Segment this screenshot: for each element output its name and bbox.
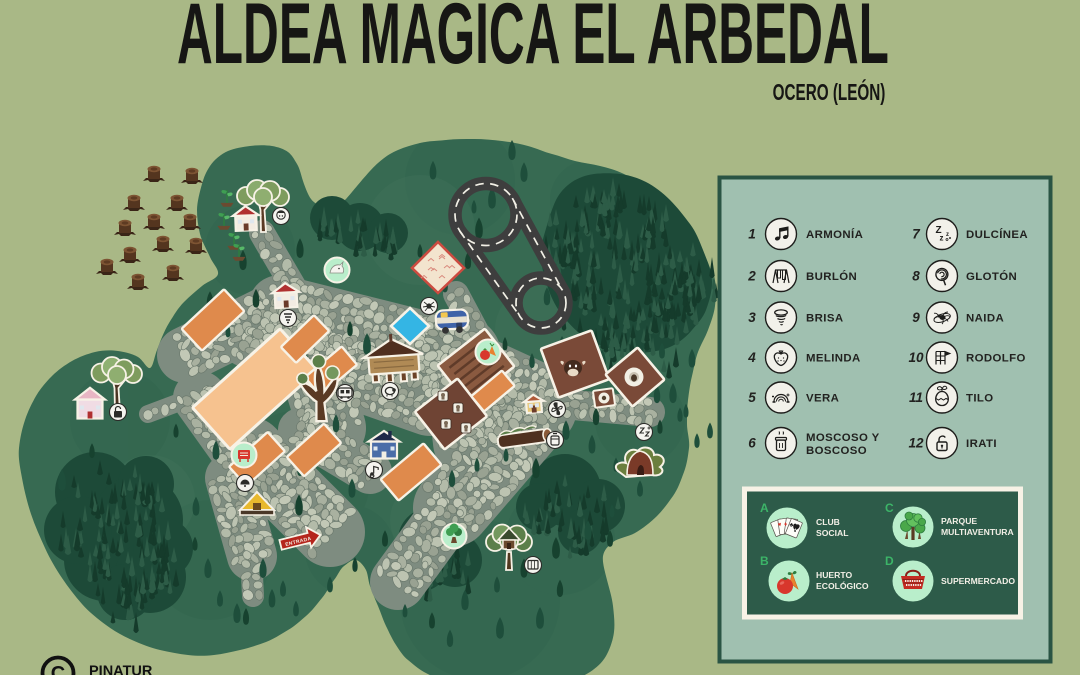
svg-text:6: 6 — [748, 436, 756, 451]
svg-text:MELINDA: MELINDA — [806, 353, 861, 365]
svg-text:DULCÍNEA: DULCÍNEA — [966, 228, 1028, 241]
svg-text:MOSCOSO Y: MOSCOSO Y — [806, 432, 880, 444]
svg-text:BRISA: BRISA — [806, 313, 843, 325]
svg-text:10: 10 — [908, 350, 924, 365]
svg-text:SUPERMERCADO: SUPERMERCADO — [941, 576, 1015, 586]
svg-text:3: 3 — [748, 310, 756, 325]
svg-text:PARQUE: PARQUE — [941, 516, 977, 526]
svg-text:IRATI: IRATI — [966, 438, 997, 450]
svg-text:5: 5 — [748, 390, 756, 405]
svg-text:GLOTÓN: GLOTÓN — [966, 270, 1017, 283]
svg-text:CLUB: CLUB — [816, 517, 840, 527]
svg-text:TILO: TILO — [966, 393, 994, 405]
svg-text:BURLÓN: BURLÓN — [806, 270, 857, 283]
svg-text:OCERO (LEÓN): OCERO (LEÓN) — [773, 77, 886, 106]
svg-text:ARMONÍA: ARMONÍA — [806, 228, 863, 241]
svg-text:BOSCOSO: BOSCOSO — [806, 445, 867, 457]
svg-text:z: z — [940, 234, 944, 243]
svg-text:4: 4 — [747, 350, 756, 365]
svg-text:NAIDA: NAIDA — [966, 313, 1004, 325]
svg-text:MULTIAVENTURA: MULTIAVENTURA — [941, 527, 1014, 537]
svg-text:C: C — [51, 663, 65, 675]
svg-text:z: z — [946, 232, 949, 238]
svg-text:A: A — [760, 501, 769, 515]
svg-text:♦: ♦ — [784, 522, 788, 528]
svg-text:B: B — [760, 554, 769, 568]
svg-text:SOCIAL: SOCIAL — [816, 528, 848, 538]
svg-text:D: D — [885, 554, 894, 568]
svg-text:11: 11 — [909, 390, 923, 405]
svg-text:ECOLÓGICO: ECOLÓGICO — [816, 580, 869, 591]
svg-text:8: 8 — [912, 269, 920, 284]
svg-text:ALDEA MÁGICA EL ARBEDAL: ALDEA MÁGICA EL ARBEDAL — [177, 0, 889, 82]
svg-text:9: 9 — [912, 310, 920, 325]
svg-text:HUERTO: HUERTO — [816, 570, 852, 580]
svg-text:RODOLFO: RODOLFO — [966, 353, 1026, 365]
svg-text:VERA: VERA — [806, 393, 839, 405]
svg-text:PINATUR: PINATUR — [89, 664, 153, 676]
svg-text:2: 2 — [747, 269, 756, 284]
svg-text:12: 12 — [908, 436, 924, 451]
svg-text:C: C — [885, 501, 894, 515]
svg-text:1: 1 — [748, 227, 756, 242]
